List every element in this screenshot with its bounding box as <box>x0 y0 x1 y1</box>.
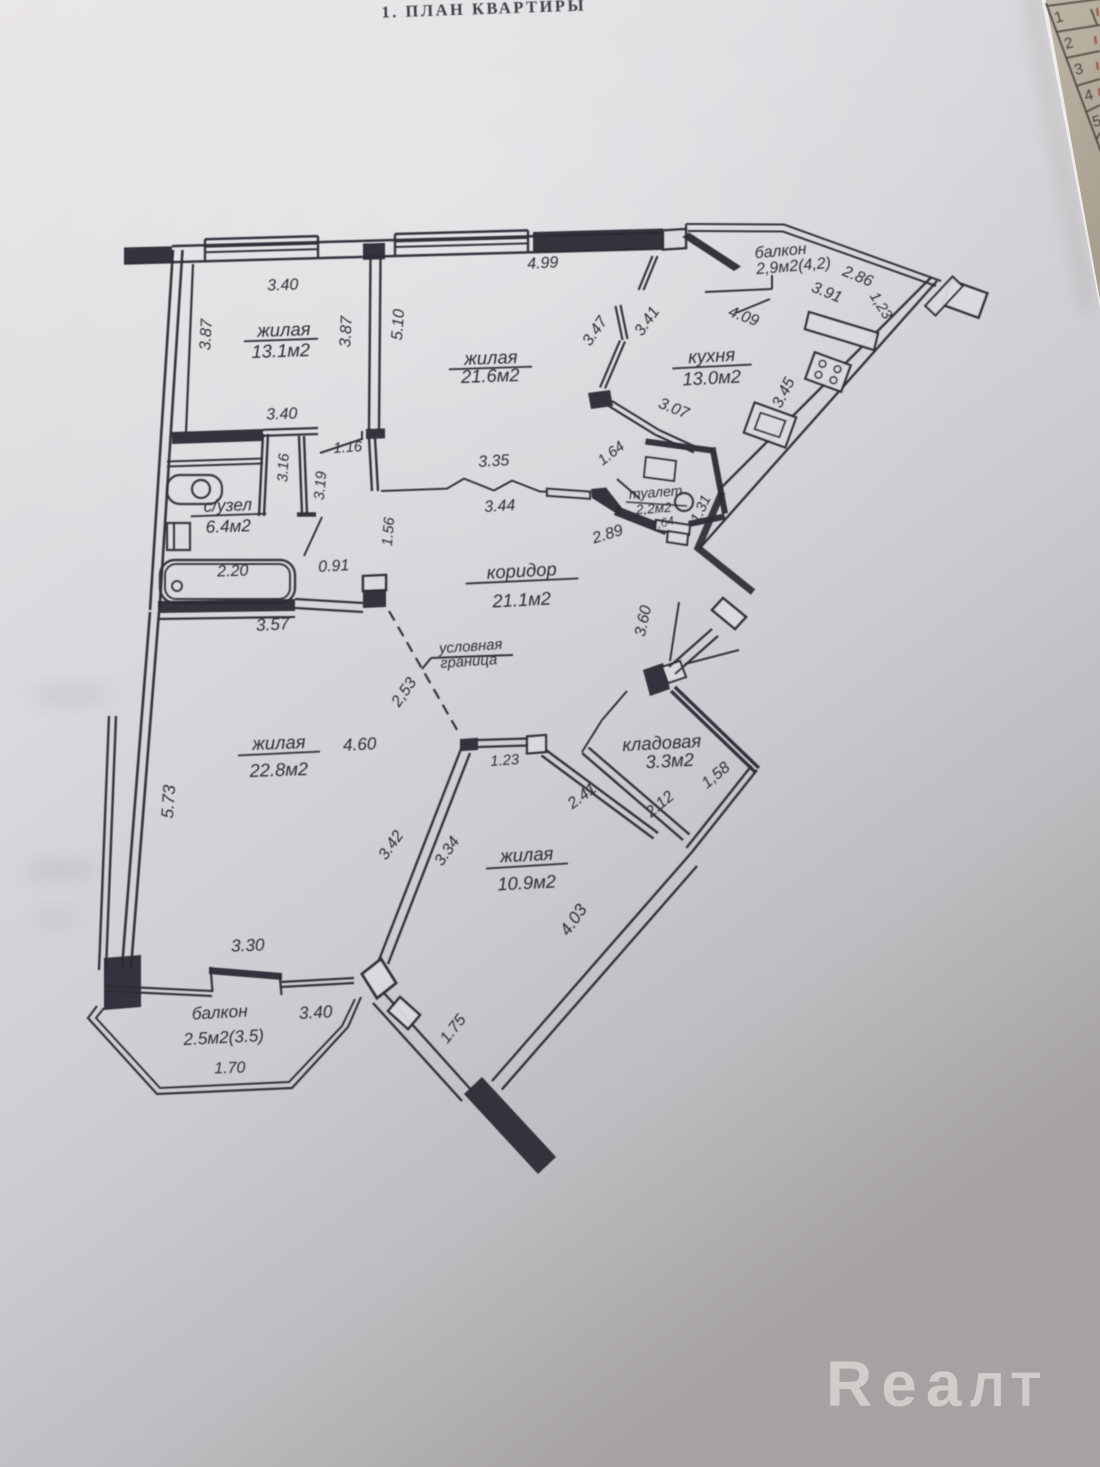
svg-text:4.99: 4.99 <box>527 254 559 273</box>
svg-text:5.73: 5.73 <box>157 784 179 819</box>
svg-text:6.4м2: 6.4м2 <box>205 515 251 537</box>
svg-text:21.6м2: 21.6м2 <box>460 364 520 387</box>
svg-text:3.16: 3.16 <box>275 452 293 482</box>
svg-text:3.87: 3.87 <box>197 318 216 351</box>
svg-text:3.87: 3.87 <box>337 315 356 348</box>
svg-text:1.23: 1.23 <box>490 752 521 770</box>
svg-text:3.40: 3.40 <box>298 1001 333 1023</box>
svg-text:3.35: 3.35 <box>478 452 510 471</box>
svg-text:5.10: 5.10 <box>389 308 408 340</box>
svg-text:1.56: 1.56 <box>380 516 399 547</box>
svg-text:жилая: жилая <box>498 843 554 867</box>
svg-text:жилая: жилая <box>256 318 311 341</box>
svg-text:3.30: 3.30 <box>231 934 266 955</box>
svg-text:2.5м2(3.5): 2.5м2(3.5) <box>182 1025 265 1049</box>
svg-text:2.20: 2.20 <box>216 562 249 580</box>
svg-text:с/узел: с/узел <box>203 494 252 516</box>
svg-text:3.40: 3.40 <box>267 276 299 294</box>
svg-text:3.19: 3.19 <box>312 471 330 501</box>
svg-text:1.16: 1.16 <box>333 439 364 457</box>
svg-text:3.3м2: 3.3м2 <box>645 749 694 773</box>
svg-text:кухня: кухня <box>688 344 736 367</box>
svg-text:жилая: жилая <box>251 731 306 754</box>
svg-text:балкон: балкон <box>191 1001 248 1024</box>
svg-text:3.57: 3.57 <box>255 613 291 635</box>
svg-text:4.60: 4.60 <box>342 733 377 755</box>
svg-text:22.8м2: 22.8м2 <box>248 758 308 781</box>
svg-text:3.40: 3.40 <box>266 405 298 423</box>
svg-text:13.1м2: 13.1м2 <box>251 339 310 362</box>
svg-text:10.9м2: 10.9м2 <box>497 870 557 894</box>
svg-text:13.0м2: 13.0м2 <box>682 365 742 389</box>
svg-text:21.1м2: 21.1м2 <box>491 587 552 611</box>
svg-text:0.91: 0.91 <box>318 557 350 576</box>
svg-text:3.44: 3.44 <box>484 497 516 516</box>
svg-text:1.70: 1.70 <box>214 1059 246 1077</box>
